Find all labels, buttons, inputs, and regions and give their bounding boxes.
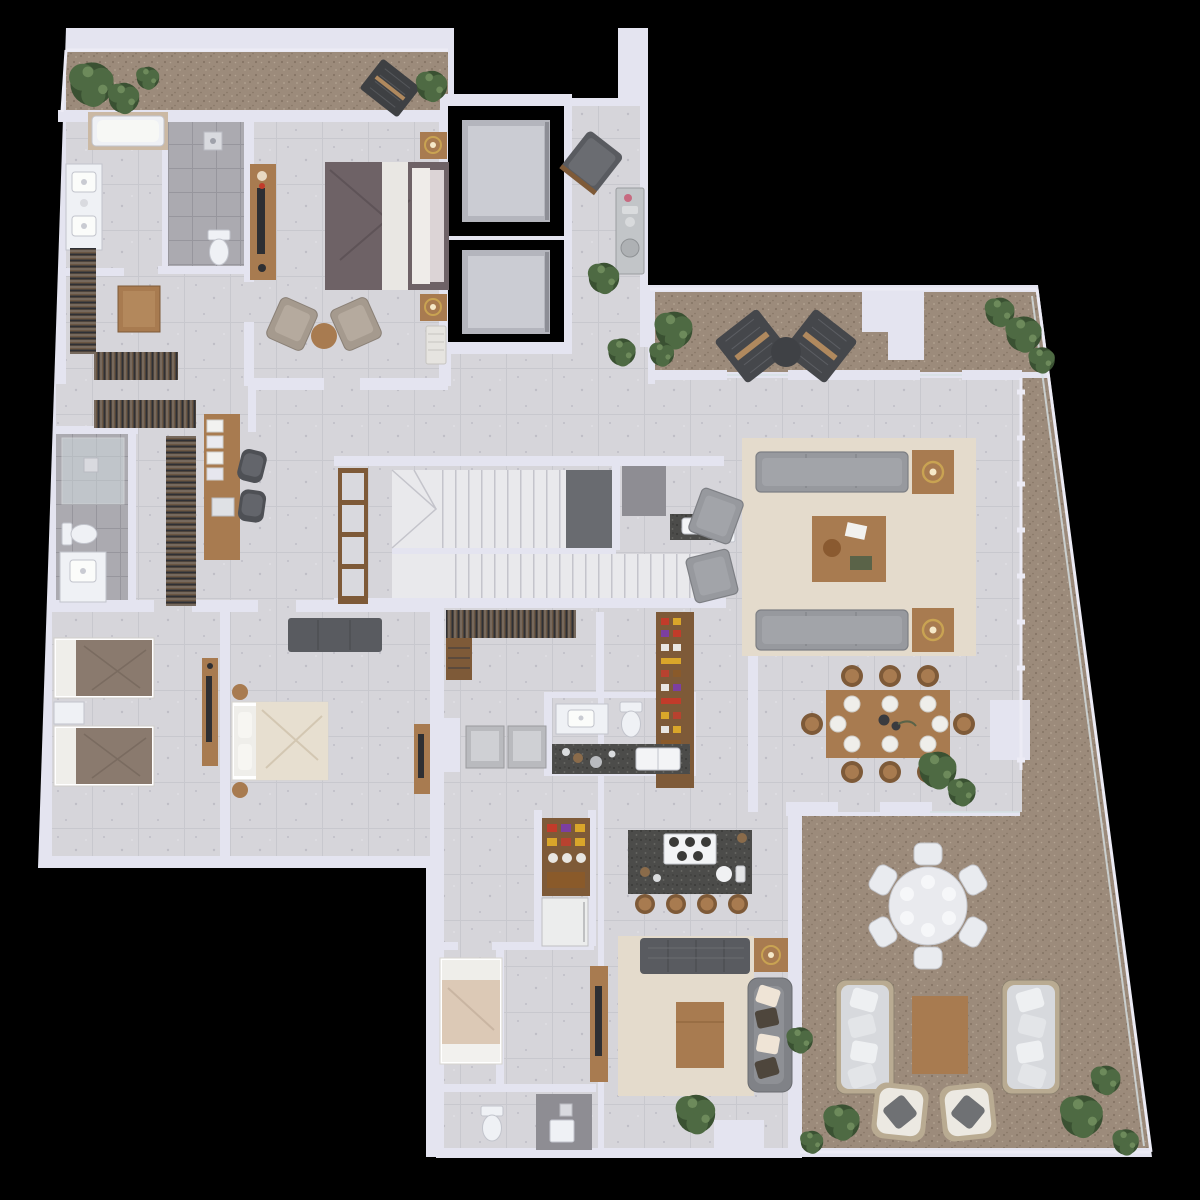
twin-bed-2 <box>54 726 154 786</box>
dining-chair <box>801 713 823 735</box>
nightstand-north <box>420 132 447 159</box>
family-coffee-table <box>676 1002 724 1068</box>
dryer <box>508 726 546 768</box>
outdoor-sofa-west <box>836 980 894 1094</box>
bar-stool-4 <box>728 894 748 914</box>
bar-stool-2 <box>666 894 686 914</box>
closet-island <box>118 286 160 332</box>
terrace-side-table <box>771 337 801 367</box>
bar-stool-3 <box>697 894 717 914</box>
outdoor-sofa-east <box>1002 980 1060 1094</box>
floor-plan-render <box>0 0 1200 1200</box>
kitchen-counter <box>552 744 690 774</box>
outdoor-armchair-2 <box>938 1081 998 1142</box>
twin-tv-console <box>202 658 218 766</box>
bookshelf <box>338 468 368 604</box>
guest-tv-console <box>414 724 430 794</box>
dining-chair <box>953 713 975 735</box>
bed-stool-2 <box>232 782 248 798</box>
dining-chair <box>841 761 863 783</box>
service-sink <box>550 1120 574 1142</box>
dining-chair <box>917 665 939 687</box>
washer <box>466 726 504 768</box>
stair-landing-dark <box>566 470 612 548</box>
closet2-rack-north <box>94 400 196 428</box>
dining-chair <box>841 665 863 687</box>
service-bed <box>440 958 502 1064</box>
master-shower <box>204 132 222 150</box>
outdoor-coffee-table <box>912 996 968 1074</box>
vanity-two <box>60 552 106 602</box>
closet-rack-west <box>70 248 96 354</box>
dining-chair <box>879 665 901 687</box>
terrace-wall-stub <box>714 1120 764 1154</box>
master-tv-console <box>250 164 276 280</box>
toilet-two <box>62 523 97 545</box>
twin-nightstand <box>54 702 84 724</box>
living-sofa-south <box>756 610 908 650</box>
living-coffee-table <box>812 516 886 582</box>
bar-cabinet <box>542 818 590 896</box>
laptop <box>212 498 234 516</box>
hall-closet-rack <box>446 610 576 638</box>
elevator-door-1 <box>545 122 549 220</box>
queen-bed <box>232 702 328 780</box>
powder-room <box>556 702 642 737</box>
family-tv-console <box>590 966 608 1082</box>
living-sofa-north <box>756 452 908 492</box>
stair-flight-lower <box>452 554 706 598</box>
master-double-vanity <box>66 164 102 250</box>
master-round-table <box>311 323 337 349</box>
refrigerator <box>542 898 588 946</box>
bar-stool-1 <box>635 894 655 914</box>
stair-landing-lower <box>392 554 454 598</box>
bathtub <box>88 112 168 150</box>
guest-sofa <box>288 618 382 652</box>
family-side-table <box>754 938 788 972</box>
family-room <box>590 936 792 1096</box>
outdoor-armchair-1 <box>870 1081 930 1142</box>
terrace-column <box>888 288 924 360</box>
master-bed <box>325 162 449 290</box>
shoe-shelf <box>446 638 472 680</box>
bed-bench <box>426 326 446 364</box>
bed-stool-1 <box>232 684 248 700</box>
core-roof-opening <box>454 28 618 98</box>
powder-toilet <box>620 702 642 737</box>
office-chair-2 <box>237 488 267 523</box>
twin-bed-1 <box>54 638 154 698</box>
family-sofa-east <box>748 978 792 1092</box>
elevator-door-2 <box>545 252 549 332</box>
family-sofa-north <box>640 938 750 974</box>
closet2-rack-vertical <box>166 436 196 606</box>
floor-plan-canvas <box>0 0 1200 1200</box>
dining-chair <box>879 761 901 783</box>
master-toilet <box>208 230 230 265</box>
living-side-table-south <box>912 608 954 652</box>
service-toilet <box>481 1106 503 1141</box>
railing-planter-block <box>990 700 1030 760</box>
grill-station <box>616 188 644 274</box>
nightstand-south <box>420 294 447 321</box>
living-side-table-north <box>912 450 954 494</box>
closet-rack-south <box>94 352 178 380</box>
kitchen-island <box>628 830 752 894</box>
